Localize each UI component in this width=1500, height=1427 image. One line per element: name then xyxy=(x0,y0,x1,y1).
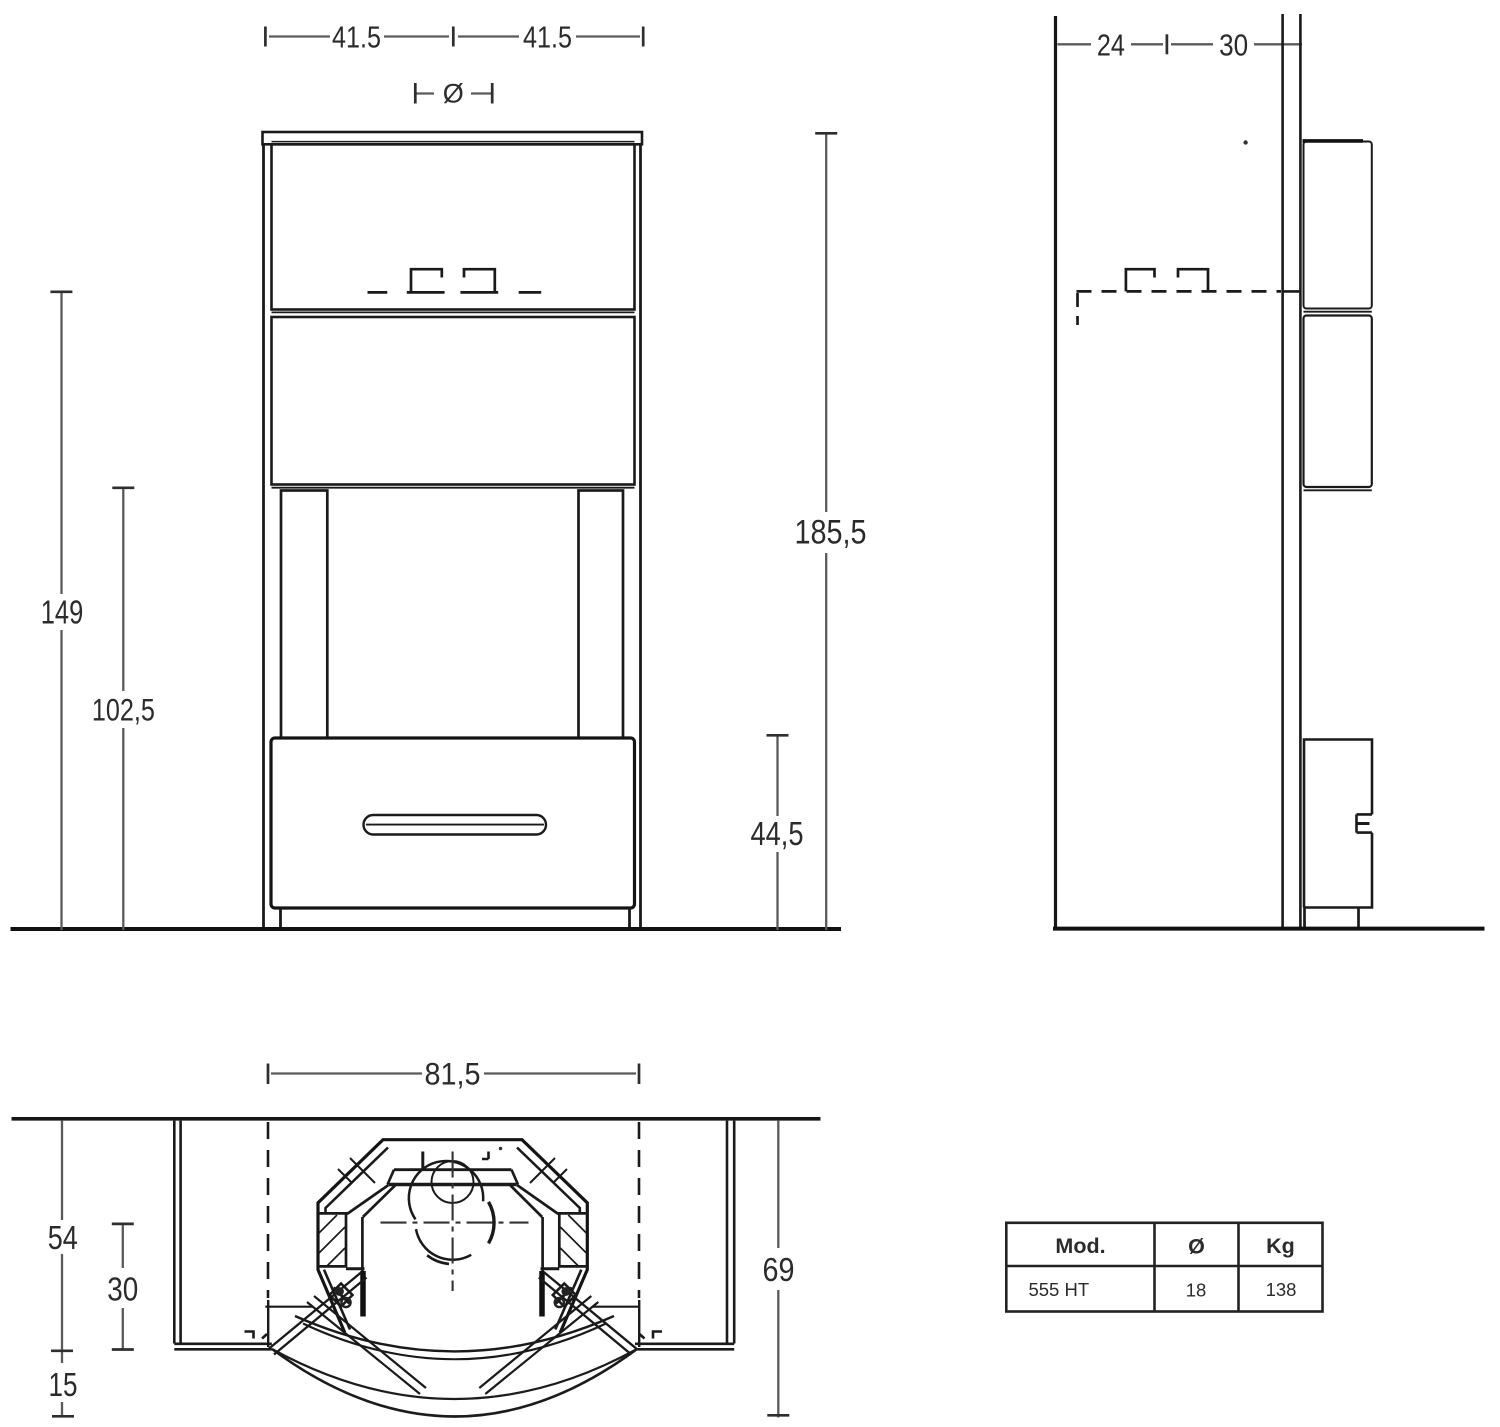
svg-text:555 HT: 555 HT xyxy=(1028,1279,1089,1300)
svg-text:18: 18 xyxy=(1186,1279,1207,1300)
svg-text:15: 15 xyxy=(49,1366,78,1403)
svg-text:24: 24 xyxy=(1097,27,1125,62)
svg-text:149: 149 xyxy=(41,595,84,632)
svg-text:138: 138 xyxy=(1266,1279,1297,1300)
svg-text:Mod.: Mod. xyxy=(1055,1234,1105,1258)
svg-text:102,5: 102,5 xyxy=(92,692,155,728)
svg-text:54: 54 xyxy=(48,1219,78,1256)
svg-text:Ø: Ø xyxy=(443,79,464,109)
svg-text:185,5: 185,5 xyxy=(795,514,867,552)
svg-text:41.5: 41.5 xyxy=(523,20,572,55)
svg-text:41.5: 41.5 xyxy=(332,20,381,55)
svg-text:Ø: Ø xyxy=(1188,1235,1205,1259)
svg-text:81,5: 81,5 xyxy=(425,1056,481,1092)
svg-text:69: 69 xyxy=(763,1251,795,1288)
svg-text:30: 30 xyxy=(1219,27,1248,62)
svg-text:30: 30 xyxy=(107,1271,138,1308)
svg-text:Kg: Kg xyxy=(1266,1234,1295,1258)
svg-text:44,5: 44,5 xyxy=(751,815,804,852)
